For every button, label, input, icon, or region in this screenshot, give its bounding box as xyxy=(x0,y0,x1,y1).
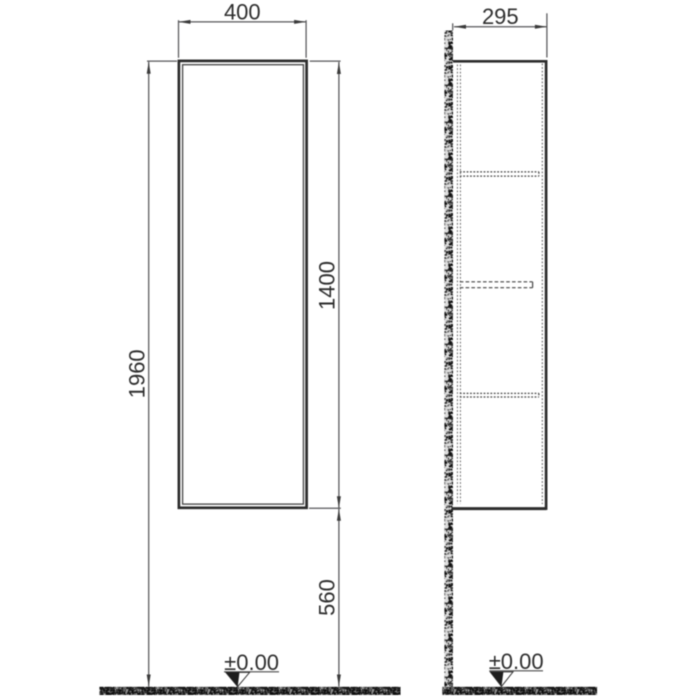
svg-text:560: 560 xyxy=(314,579,339,616)
svg-text:1400: 1400 xyxy=(314,261,339,310)
svg-text:±0.00: ±0.00 xyxy=(224,650,279,675)
svg-text:400: 400 xyxy=(224,0,261,25)
svg-text:1960: 1960 xyxy=(124,349,149,398)
svg-text:295: 295 xyxy=(482,4,519,29)
svg-text:±0.00: ±0.00 xyxy=(489,649,544,674)
